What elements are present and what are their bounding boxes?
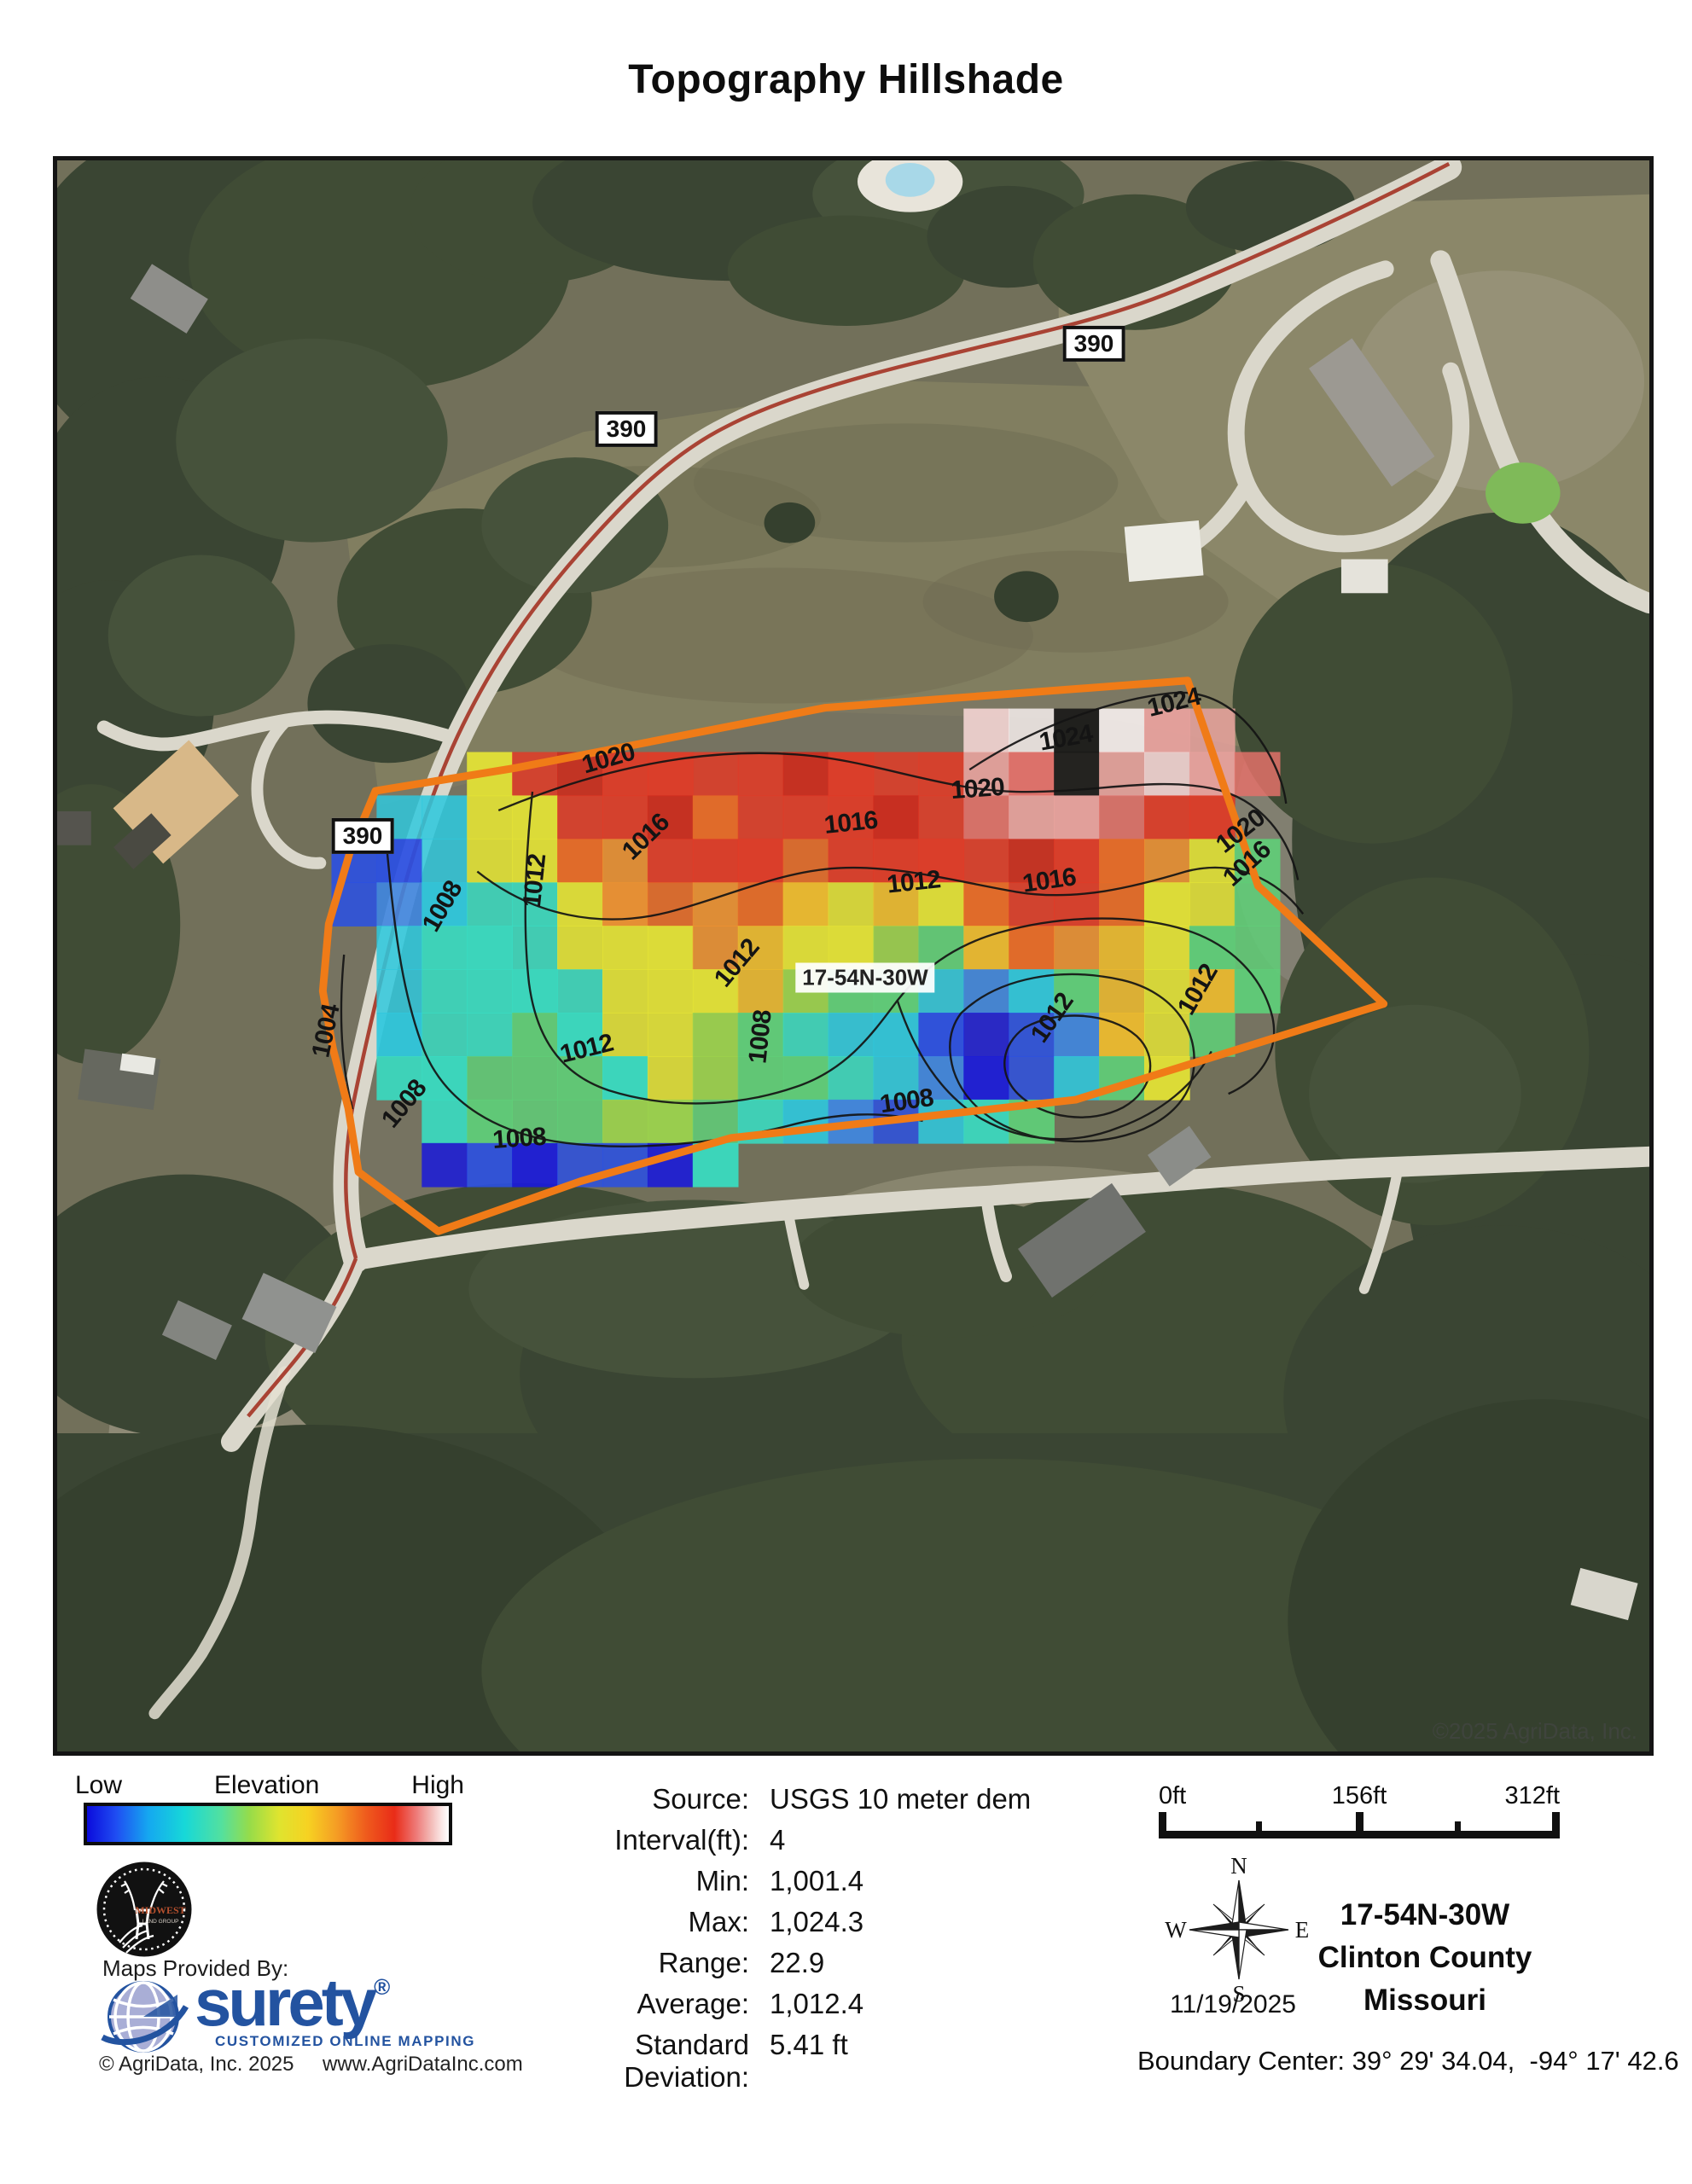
compass-rose-icon: N S W E — [1160, 1853, 1314, 2011]
page-title: Topography Hillshade — [0, 56, 1692, 103]
stat-label: Interval(ft): — [512, 1824, 749, 1856]
location-state: Missouri — [1297, 1979, 1553, 2022]
map-frame: 1024102410201020102010161016101610161012… — [53, 156, 1654, 1756]
scale-start-label: 0ft — [1159, 1782, 1186, 1809]
map-date: 11/19/2025 — [1156, 1990, 1310, 2019]
scale-bar-ticks — [1159, 1812, 1560, 1838]
svg-text:1012: 1012 — [518, 852, 551, 909]
stat-value: 4 — [770, 1824, 785, 1856]
location-parcel: 17-54N-30W — [1297, 1894, 1553, 1937]
location-county: Clinton County — [1297, 1937, 1553, 1979]
elevation-stats: Source:USGS 10 meter dem Interval(ft):4 … — [512, 1783, 1109, 2070]
surety-logo-text: surety® — [195, 1969, 390, 2036]
stat-row-min: Min:1,001.4 — [512, 1865, 1109, 1906]
swimming-pool — [886, 163, 935, 197]
stat-value: 1,012.4 — [770, 1988, 863, 2020]
scale-mid-label: 156ft — [1332, 1782, 1387, 1809]
location-block: 17-54N-30W Clinton County Missouri — [1297, 1894, 1553, 2022]
aerial-map: 1024102410201020102010161016101610161012… — [57, 160, 1649, 1751]
midwest-land-group-logo: MIDWEST LAND GROUP — [94, 1861, 196, 1961]
scale-bar: 0ft 156ft 312ft — [1154, 1781, 1572, 1846]
svg-text:1012: 1012 — [886, 865, 942, 898]
stat-value: 1,024.3 — [770, 1906, 863, 1938]
surety-globe-icon — [99, 1978, 193, 2054]
road-badge-390: 390 — [1063, 326, 1125, 362]
surety-tagline: CUSTOMIZED ONLINE MAPPING — [215, 2033, 475, 2050]
stat-label: Max: — [512, 1906, 749, 1938]
compass-north-label: N — [1230, 1853, 1247, 1879]
boundary-center-coords: Boundary Center: 39° 29' 34.04, -94° 17'… — [1137, 2046, 1679, 2077]
road-badge-390: 390 — [596, 411, 658, 447]
stat-value: 22.9 — [770, 1947, 824, 1979]
shed-roof — [57, 811, 91, 845]
stat-label: Min: — [512, 1865, 749, 1897]
svg-text:1016: 1016 — [823, 806, 879, 839]
stat-row-max: Max:1,024.3 — [512, 1906, 1109, 1947]
stat-value: USGS 10 meter dem — [770, 1783, 1031, 1815]
stat-row-stddev: Standard Deviation:5.41 ft — [512, 2029, 1109, 2070]
map-copyright: ©2025 AgriData, Inc. — [1433, 1718, 1637, 1745]
shed-roof-white — [1125, 520, 1204, 582]
golf-green — [1486, 462, 1561, 524]
svg-text:1020: 1020 — [950, 773, 1005, 804]
compass-main-points — [1189, 1880, 1288, 1979]
page: Topography Hillshade — [0, 0, 1692, 2184]
scale-end-label: 312ft — [1505, 1782, 1561, 1809]
parcel-label: 17-54N-30W — [795, 963, 934, 993]
elevation-legend-labels: Low Elevation High — [75, 1771, 464, 1800]
legend-low-label: Low — [75, 1771, 122, 1800]
stat-row-range: Range:22.9 — [512, 1947, 1109, 1988]
stat-row-source: Source:USGS 10 meter dem — [512, 1783, 1109, 1824]
stat-label: Average: — [512, 1988, 749, 2020]
road-badge-390: 390 — [332, 818, 394, 854]
stat-label: Standard Deviation: — [512, 2029, 749, 2094]
stat-value: 1,001.4 — [770, 1865, 863, 1897]
registered-mark: ® — [374, 1974, 390, 2000]
stat-label: Range: — [512, 1947, 749, 1979]
legend-title: Elevation — [214, 1771, 319, 1800]
legend-high-label: High — [411, 1771, 464, 1800]
svg-text:1008: 1008 — [491, 1123, 547, 1154]
stat-row-average: Average:1,012.4 — [512, 1988, 1109, 2029]
svg-text:1008: 1008 — [743, 1008, 776, 1065]
compass-west-label: W — [1165, 1917, 1187, 1943]
agridata-website: www.AgriDataInc.com — [323, 2053, 523, 2077]
shed-roof-white — [1341, 559, 1388, 593]
midwest-text: MIDWEST — [135, 1904, 185, 1916]
land-group-text: LAND GROUP — [142, 1919, 179, 1925]
stat-row-interval: Interval(ft):4 — [512, 1824, 1109, 1865]
stat-label: Source: — [512, 1783, 749, 1815]
agridata-copyright: © AgriData, Inc. 2025 — [99, 2053, 294, 2077]
surety-wordmark: surety — [195, 1965, 374, 2040]
elevation-gradient-bar — [84, 1803, 452, 1845]
stat-value: 5.41 ft — [770, 2029, 848, 2061]
